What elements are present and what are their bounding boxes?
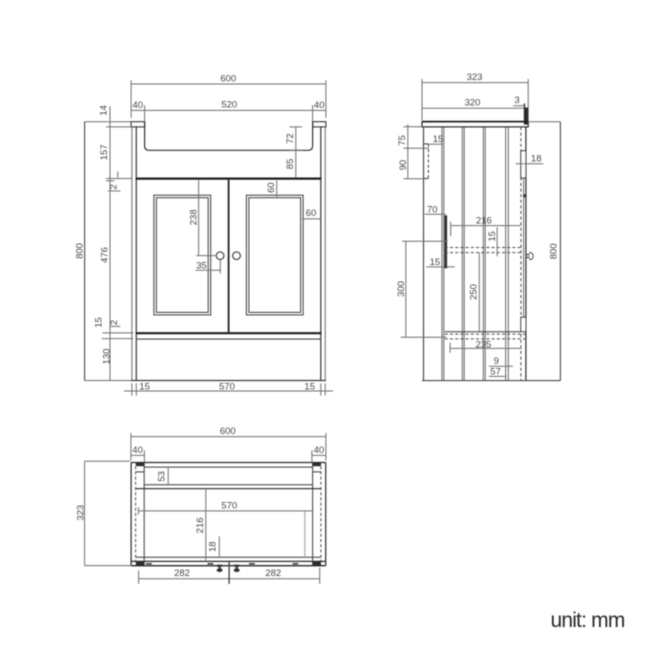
svg-text:15: 15 (139, 382, 150, 393)
svg-text:9: 9 (494, 356, 499, 367)
svg-text:216: 216 (476, 215, 492, 226)
svg-text:320: 320 (465, 98, 481, 109)
svg-text:15: 15 (430, 257, 441, 268)
svg-text:40: 40 (132, 445, 143, 456)
svg-text:unit: mm: unit: mm (550, 609, 624, 632)
svg-text:40: 40 (133, 100, 144, 111)
svg-text:53: 53 (157, 471, 168, 482)
svg-text:35: 35 (196, 261, 207, 272)
svg-text:476: 476 (100, 247, 111, 263)
svg-text:85: 85 (285, 159, 296, 170)
svg-text:72: 72 (285, 133, 296, 144)
svg-text:800: 800 (548, 243, 559, 259)
svg-text:323: 323 (76, 505, 87, 521)
svg-text:282: 282 (265, 568, 281, 579)
svg-text:800: 800 (74, 243, 85, 259)
svg-text:60: 60 (266, 182, 277, 193)
svg-text:18: 18 (208, 541, 219, 552)
svg-text:250: 250 (469, 284, 480, 300)
svg-text:520: 520 (221, 100, 237, 111)
svg-text:570: 570 (219, 382, 235, 393)
svg-text:216: 216 (195, 517, 206, 533)
svg-text:323: 323 (467, 72, 483, 83)
svg-text:235: 235 (475, 339, 491, 350)
svg-text:15: 15 (94, 317, 105, 328)
svg-text:2: 2 (109, 320, 120, 325)
svg-text:18: 18 (531, 153, 542, 164)
svg-text:600: 600 (220, 73, 236, 84)
svg-text:300: 300 (396, 281, 407, 297)
svg-text:600: 600 (220, 426, 236, 437)
svg-text:3: 3 (514, 95, 519, 106)
svg-text:40: 40 (314, 445, 325, 456)
svg-text:57: 57 (490, 367, 501, 378)
svg-text:40: 40 (314, 100, 325, 111)
svg-text:2: 2 (109, 184, 120, 189)
svg-text:15: 15 (487, 231, 498, 242)
svg-text:75: 75 (397, 135, 408, 146)
svg-text:157: 157 (99, 144, 110, 160)
svg-text:15: 15 (304, 382, 315, 393)
svg-text:15: 15 (433, 134, 444, 145)
svg-text:14: 14 (99, 105, 110, 116)
svg-text:130: 130 (102, 349, 113, 365)
svg-text:282: 282 (174, 568, 190, 579)
svg-text:238: 238 (189, 209, 200, 225)
svg-text:70: 70 (427, 204, 438, 215)
svg-text:90: 90 (398, 160, 409, 171)
svg-text:60: 60 (306, 208, 317, 219)
svg-text:570: 570 (221, 501, 237, 512)
